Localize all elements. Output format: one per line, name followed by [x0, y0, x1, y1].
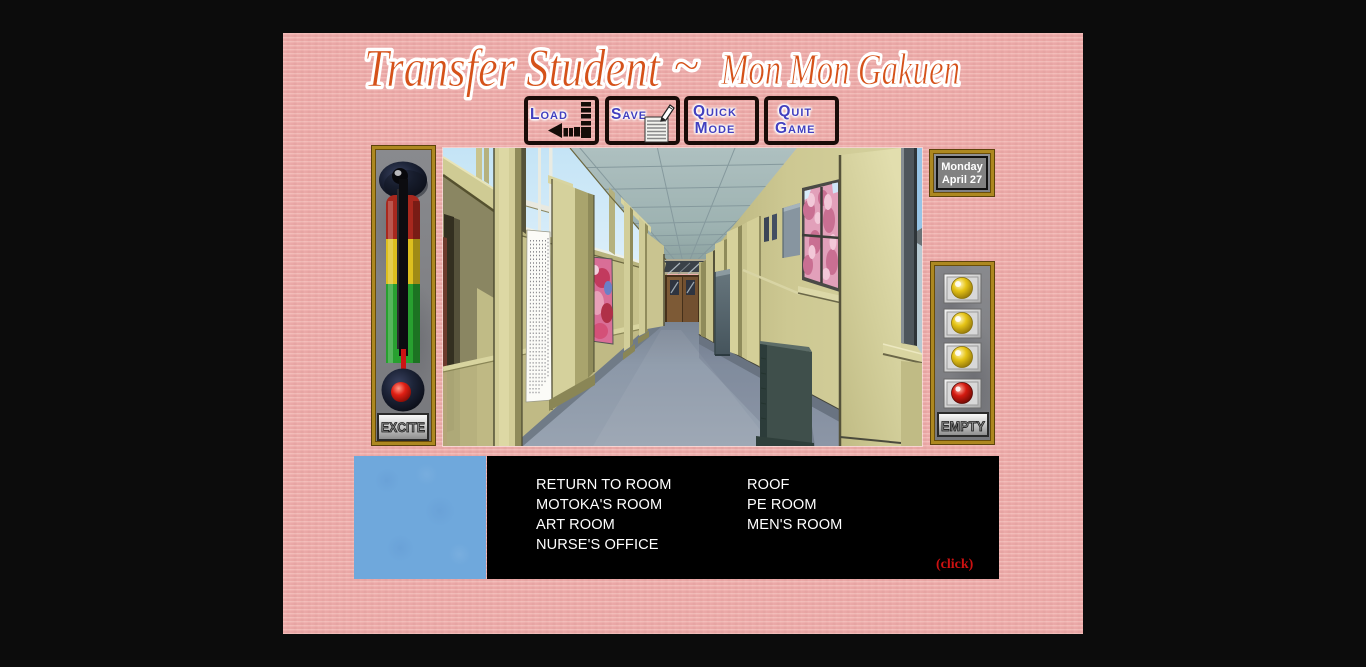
svg-text:~: ~: [673, 39, 699, 92]
svg-text:EXCITE: EXCITE: [381, 420, 425, 435]
svg-text:EMPTY: EMPTY: [941, 419, 985, 434]
svg-text:Transfer Student: Transfer Student: [364, 38, 662, 98]
svg-text:Mon Mon Gakuen: Mon Mon Gakuen: [720, 45, 960, 94]
